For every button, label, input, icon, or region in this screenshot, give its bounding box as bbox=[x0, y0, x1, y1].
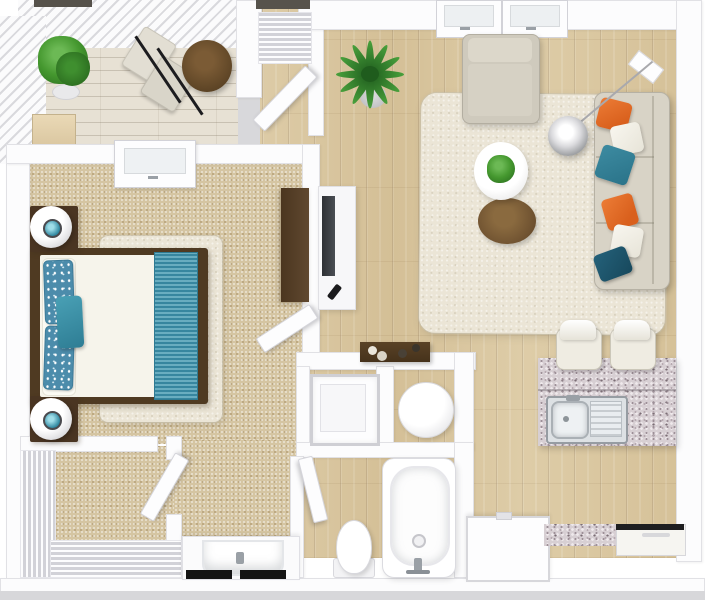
bathtub-basin bbox=[390, 466, 450, 566]
kitchen-counter-strip bbox=[544, 524, 618, 546]
wall-laundry-right bbox=[454, 352, 474, 450]
floor-plan-scene bbox=[0, 0, 705, 600]
refrigerator bbox=[466, 516, 550, 582]
console-decor-vase-1 bbox=[368, 346, 377, 355]
vanity-carpet bbox=[174, 440, 304, 540]
armchair-seat-cushion bbox=[468, 64, 532, 116]
bistro-table bbox=[182, 40, 232, 92]
bedroom-window-handle bbox=[148, 176, 158, 179]
bar-stool-2-back bbox=[614, 320, 650, 340]
roof-sliver-entry bbox=[256, 0, 310, 9]
kitchen-drainboard bbox=[590, 401, 622, 437]
console-decor-bowl-1 bbox=[398, 349, 407, 358]
tv-screen bbox=[322, 196, 335, 276]
bedroom-dresser bbox=[281, 188, 309, 302]
range-back-edge bbox=[616, 524, 684, 530]
bed-runner-teal-stripes bbox=[154, 252, 198, 400]
coffee-table-plant bbox=[487, 155, 515, 183]
closet-wire-shelf-bottom bbox=[50, 540, 182, 578]
arc-lamp-dome bbox=[548, 116, 588, 156]
roof-sliver-left bbox=[34, 0, 92, 7]
balcony-plant-pot bbox=[52, 84, 80, 100]
wall-bottom-outer bbox=[0, 578, 705, 592]
range-controls bbox=[642, 533, 670, 537]
wall-right-outer bbox=[676, 0, 702, 562]
sofa-back-seam bbox=[652, 96, 654, 284]
vanity-dark-drawer-1 bbox=[186, 570, 232, 579]
bed-pillow-teal-accent bbox=[56, 295, 85, 348]
bathtub-drain bbox=[412, 534, 426, 548]
entry-closet-shelf bbox=[258, 12, 312, 64]
refrigerator-handle bbox=[496, 512, 512, 520]
kitchen-sink-drain bbox=[563, 416, 569, 422]
vanity-dark-drawer-2 bbox=[240, 570, 286, 579]
kitchen-faucet bbox=[566, 395, 580, 401]
table-lamp-top-finial bbox=[43, 219, 62, 238]
living-window-1-handle bbox=[460, 27, 470, 30]
toilet-bowl bbox=[336, 520, 372, 574]
bar-stool-1-back bbox=[560, 320, 596, 340]
palm-crown bbox=[361, 66, 379, 82]
living-window-1-pane bbox=[444, 5, 494, 27]
table-lamp-bottom-finial bbox=[43, 411, 62, 430]
coffee-table-brown bbox=[478, 198, 536, 244]
washer-lid bbox=[320, 384, 366, 432]
kitchen-sink-basin bbox=[551, 401, 589, 439]
bathtub-faucet-bar bbox=[406, 570, 430, 574]
bedroom-window-pane bbox=[124, 148, 186, 174]
water-heater bbox=[398, 382, 454, 438]
console-decor-bowl-2 bbox=[412, 344, 420, 352]
living-window-2-pane bbox=[510, 5, 560, 27]
kitchen-bar-seam bbox=[538, 389, 676, 391]
living-window-2-handle bbox=[526, 27, 536, 30]
console-decor-vase-2 bbox=[377, 351, 387, 361]
floor-base-strip bbox=[0, 591, 705, 600]
armchair-back-cushion bbox=[468, 38, 532, 62]
vanity-faucet bbox=[236, 552, 244, 564]
